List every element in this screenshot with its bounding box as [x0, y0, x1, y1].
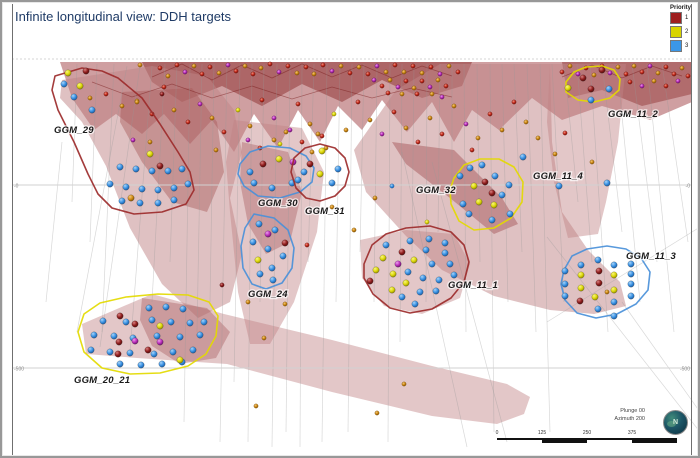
target-dot-GGM_32[interactable] [507, 211, 513, 217]
drillhole-point[interactable] [500, 128, 504, 132]
drillhole-point[interactable] [440, 132, 444, 136]
target-dot-GGM_24[interactable] [272, 227, 278, 233]
target-dot-GGM_20_21[interactable] [123, 319, 129, 325]
target-dot-GGM_11_1[interactable] [405, 269, 411, 275]
target-dot-GGM_32[interactable] [506, 182, 512, 188]
drillhole-point[interactable] [339, 64, 343, 68]
target-dot-GGM_11_1[interactable] [447, 261, 453, 267]
drillhole-point[interactable] [138, 63, 142, 67]
target-dot-GGM_32[interactable] [499, 192, 505, 198]
drillhole-point[interactable] [321, 63, 325, 67]
cluster-label-GGM_11_4: GGM_11_4 [533, 171, 584, 182]
drillhole-point[interactable] [553, 152, 557, 156]
elevation-label-right: -500 [680, 367, 690, 373]
target-dot-GGM_30[interactable] [251, 180, 257, 186]
drillhole-point[interactable] [628, 80, 632, 84]
target-dot-GGM_24[interactable] [269, 265, 275, 271]
target-dot-GGM_11_1[interactable] [367, 278, 373, 284]
drillhole-point[interactable] [160, 92, 164, 96]
target-dot-GGM_32[interactable] [466, 211, 472, 217]
drillhole-point[interactable] [411, 64, 415, 68]
drillhole-point[interactable] [131, 138, 135, 142]
drillhole-point[interactable] [373, 196, 377, 200]
target-dot-GGM_11_1[interactable] [399, 249, 405, 255]
target-dot-GGM_29[interactable] [171, 197, 177, 203]
target-dot-GGM_11_1[interactable] [433, 288, 439, 294]
target-dot-GGM_29[interactable] [155, 200, 161, 206]
drillhole-point[interactable] [200, 72, 204, 76]
drillhole-point[interactable] [563, 131, 567, 135]
target-dot-GGM_20_21[interactable] [117, 313, 123, 319]
drillhole-point[interactable] [236, 108, 240, 112]
target-dot-GGM_20_21[interactable] [115, 351, 121, 357]
target-dot-GGM_11_3[interactable] [628, 293, 634, 299]
target-dot-GGM_11_1[interactable] [451, 272, 457, 278]
drillhole-point[interactable] [576, 72, 580, 76]
drillhole-point[interactable] [316, 132, 320, 136]
drillhole-point[interactable] [368, 118, 372, 122]
target-dot-GGM_11_3[interactable] [596, 268, 602, 274]
drillhole-point[interactable] [605, 290, 609, 294]
target-dot-GGM_11_4[interactable] [556, 183, 562, 189]
target-dot-GGM_20_21[interactable] [168, 319, 174, 325]
target-dot-GGM_31[interactable] [295, 177, 301, 183]
target-dot-GGM_31[interactable] [319, 148, 325, 154]
target-dot-GGM_20_21[interactable] [187, 320, 193, 326]
drillhole-point[interactable] [444, 84, 448, 88]
target-dot-GGM_32[interactable] [489, 217, 495, 223]
target-dot-GGM_29[interactable] [123, 184, 129, 190]
drillhole-point[interactable] [656, 71, 660, 75]
drillhole-point[interactable] [425, 220, 429, 224]
drillhole-point[interactable] [388, 78, 392, 82]
target-dot-GGM_11_1[interactable] [407, 238, 413, 244]
drillhole-point[interactable] [568, 64, 572, 68]
drillhole-point[interactable] [464, 122, 468, 126]
drillhole-point[interactable] [234, 69, 238, 73]
target-dot-GGM_30[interactable] [301, 169, 307, 175]
drillhole-point[interactable] [560, 70, 564, 74]
target-dot-GGM_20_21[interactable] [111, 333, 117, 339]
target-dot-GGM_20_21[interactable] [157, 323, 163, 329]
drillhole-point[interactable] [222, 130, 226, 134]
drillhole-point[interactable] [248, 124, 252, 128]
target-dot-GGM_20_21[interactable] [107, 349, 113, 355]
target-dot-GGM_29[interactable] [185, 181, 191, 187]
target-dot-GGM_29[interactable] [179, 166, 185, 172]
drillhole-point[interactable] [183, 70, 187, 74]
drillhole-point[interactable] [624, 72, 628, 76]
drillhole-point[interactable] [332, 112, 336, 116]
drillhole-point[interactable] [396, 85, 400, 89]
drillhole-point[interactable] [686, 74, 690, 78]
drillhole-point[interactable] [672, 72, 676, 76]
drillhole-point[interactable] [186, 120, 190, 124]
drillhole-point[interactable] [415, 92, 419, 96]
drillhole-point[interactable] [295, 71, 299, 75]
target-dot-GGM_29[interactable] [139, 186, 145, 192]
drillhole-point[interactable] [272, 138, 276, 142]
target-dot-GGM_24[interactable] [280, 253, 286, 259]
drillhole-point[interactable] [412, 86, 416, 90]
target-dot-GGM_29[interactable] [89, 107, 95, 113]
target-dot-GGM_32[interactable] [467, 165, 473, 171]
drillhole-point[interactable] [251, 72, 255, 76]
drillhole-point[interactable] [380, 132, 384, 136]
drillhole-point[interactable] [470, 148, 474, 152]
target-dot-GGM_29[interactable] [71, 94, 77, 100]
target-dot-GGM_31[interactable] [335, 166, 341, 172]
target-dot-GGM_24[interactable] [265, 231, 271, 237]
target-dot-GGM_11_2[interactable] [565, 85, 571, 91]
drillhole-point[interactable] [429, 65, 433, 69]
target-dot-GGM_11_3[interactable] [628, 271, 634, 277]
target-dot-GGM_20_21[interactable] [127, 350, 133, 356]
drillhole-point[interactable] [608, 71, 612, 75]
target-dot-GGM_30[interactable] [276, 156, 282, 162]
drillhole-point[interactable] [300, 140, 304, 144]
target-dot-GGM_11_1[interactable] [380, 255, 386, 261]
drillhole-point[interactable] [375, 411, 379, 415]
target-dot-GGM_11_3[interactable] [611, 313, 617, 319]
drillhole-point[interactable] [312, 72, 316, 76]
target-dot-GGM_29[interactable] [107, 181, 113, 187]
drillhole-point[interactable] [198, 102, 202, 106]
drillhole-point[interactable] [404, 126, 408, 130]
drillhole-point[interactable] [372, 78, 376, 82]
target-dot-GGM_20_21[interactable] [157, 339, 163, 345]
target-dot-GGM_11_1[interactable] [429, 261, 435, 267]
drillhole-point[interactable] [308, 122, 312, 126]
target-dot-GGM_11_1[interactable] [403, 280, 409, 286]
target-dot-GGM_11_1[interactable] [411, 257, 417, 263]
target-dot-GGM_11_3[interactable] [611, 287, 617, 293]
drillhole-point[interactable] [272, 116, 276, 120]
drillhole-point[interactable] [375, 64, 379, 68]
target-dot-GGM_11_3[interactable] [628, 281, 634, 287]
target-dot-GGM_11_3[interactable] [592, 294, 598, 300]
target-dot-GGM_29[interactable] [171, 185, 177, 191]
target-dot-GGM_31[interactable] [329, 180, 335, 186]
target-dot-GGM_11_1[interactable] [412, 301, 418, 307]
target-dot-GGM_11_3[interactable] [562, 281, 568, 287]
target-dot-GGM_29[interactable] [137, 200, 143, 206]
target-dot-GGM_29[interactable] [117, 164, 123, 170]
target-dot-GGM_11_1[interactable] [399, 294, 405, 300]
drillhole-point[interactable] [652, 79, 656, 83]
drillhole-point[interactable] [390, 184, 394, 188]
target-dot-GGM_20_21[interactable] [197, 332, 203, 338]
target-dot-GGM_29[interactable] [83, 68, 89, 74]
drillhole-point[interactable] [348, 71, 352, 75]
target-dot-GGM_24[interactable] [282, 240, 288, 246]
target-dot-GGM_30[interactable] [269, 185, 275, 191]
target-dot-GGM_11_1[interactable] [373, 267, 379, 273]
target-dot-GGM_29[interactable] [65, 70, 71, 76]
target-dot-GGM_20_21[interactable] [100, 318, 106, 324]
target-dot-GGM_11_1[interactable] [390, 271, 396, 277]
drillhole-point[interactable] [420, 79, 424, 83]
legend-item-priority-2[interactable]: 2 [670, 26, 691, 38]
drillhole-point[interactable] [420, 71, 424, 75]
drillhole-point[interactable] [404, 79, 408, 83]
drillhole-point[interactable] [616, 65, 620, 69]
drillhole-point[interactable] [366, 72, 370, 76]
drillhole-point[interactable] [283, 302, 287, 306]
target-dot-GGM_20_21[interactable] [154, 333, 160, 339]
target-dot-GGM_24[interactable] [265, 246, 271, 252]
drillhole-point[interactable] [305, 243, 309, 247]
drillhole-point[interactable] [217, 71, 221, 75]
drillhole-point[interactable] [524, 120, 528, 124]
target-dot-GGM_11_1[interactable] [442, 250, 448, 256]
drillhole-point[interactable] [320, 134, 324, 138]
target-dot-GGM_11_3[interactable] [562, 293, 568, 299]
elevation-label-left: -0 [14, 184, 19, 190]
drillhole-point[interactable] [632, 64, 636, 68]
target-dot-GGM_11_3[interactable] [595, 306, 601, 312]
target-dot-GGM_11_2[interactable] [588, 86, 594, 92]
drillhole-point[interactable] [158, 66, 162, 70]
target-dot-GGM_29[interactable] [128, 195, 134, 201]
drillhole-point[interactable] [330, 69, 334, 73]
target-dot-GGM_11_1[interactable] [442, 240, 448, 246]
drillhole-point[interactable] [246, 300, 250, 304]
drillhole-point[interactable] [162, 85, 166, 89]
drillhole-point[interactable] [452, 104, 456, 108]
target-dot-GGM_32[interactable] [482, 179, 488, 185]
target-dot-GGM_32[interactable] [460, 201, 466, 207]
target-dot-GGM_11_3[interactable] [596, 280, 602, 286]
target-dot-GGM_29[interactable] [133, 166, 139, 172]
target-dot-GGM_20_21[interactable] [138, 362, 144, 368]
drillhole-point[interactable] [664, 65, 668, 69]
legend-item-priority-3[interactable]: 3 [670, 40, 691, 52]
drillhole-point[interactable] [436, 78, 440, 82]
target-dot-GGM_11_4[interactable] [520, 154, 526, 160]
drillhole-point[interactable] [284, 130, 288, 134]
cluster-label-GGM_11_1: GGM_11_1 [448, 280, 498, 291]
compass-globe[interactable]: N [663, 410, 688, 435]
target-dot-GGM_29[interactable] [61, 81, 67, 87]
target-dot-GGM_11_3[interactable] [611, 299, 617, 305]
cluster-label-GGM_20_21: GGM_20_21 [74, 375, 130, 386]
target-dot-GGM_20_21[interactable] [132, 338, 138, 344]
drillhole-point[interactable] [402, 382, 406, 386]
scale-tick-375: 375 [628, 430, 636, 436]
drillhole-point[interactable] [664, 84, 668, 88]
drillhole-point[interactable] [440, 95, 444, 99]
drillhole-point[interactable] [536, 136, 540, 140]
drillhole-point[interactable] [430, 92, 434, 96]
target-dot-GGM_31[interactable] [307, 161, 313, 167]
target-dot-GGM_11_3[interactable] [562, 268, 568, 274]
drillhole-point[interactable] [648, 64, 652, 68]
drillhole-point[interactable] [254, 404, 258, 408]
drillhole-point[interactable] [488, 112, 492, 116]
drillhole-point[interactable] [402, 70, 406, 74]
section-view-canvas[interactable]: -0-0-500-500GGM_29GGM_30GGM_31GGM_24GGM_… [2, 2, 700, 458]
drillhole-point[interactable] [447, 64, 451, 68]
drill-trace [46, 142, 62, 302]
target-dot-GGM_29[interactable] [165, 168, 171, 174]
target-dot-GGM_11_2[interactable] [580, 75, 586, 81]
target-dot-GGM_11_1[interactable] [417, 289, 423, 295]
drillhole-point[interactable] [310, 150, 314, 154]
drillhole-point[interactable] [640, 70, 644, 74]
drillhole-point[interactable] [456, 70, 460, 74]
drillhole-point[interactable] [428, 116, 432, 120]
drillhole-point[interactable] [210, 116, 214, 120]
drillhole-point[interactable] [120, 104, 124, 108]
target-dot-GGM_24[interactable] [270, 277, 276, 283]
target-dot-GGM_29[interactable] [77, 83, 83, 89]
target-dot-GGM_11_1[interactable] [423, 247, 429, 253]
drillhole-point[interactable] [416, 140, 420, 144]
target-dot-GGM_32[interactable] [479, 162, 485, 168]
target-dot-GGM_11_1[interactable] [383, 242, 389, 248]
drillhole-point[interactable] [384, 70, 388, 74]
drillhole-point[interactable] [268, 62, 272, 66]
drillhole-point[interactable] [262, 336, 266, 340]
target-dot-GGM_20_21[interactable] [88, 347, 94, 353]
target-dot-GGM_11_3[interactable] [595, 257, 601, 263]
drillhole-point[interactable] [172, 108, 176, 112]
drillhole-point[interactable] [286, 64, 290, 68]
drillhole-point[interactable] [640, 84, 644, 88]
drillhole-point[interactable] [476, 136, 480, 140]
target-dot-GGM_29[interactable] [119, 198, 125, 204]
priority-2-label: 2 [685, 29, 688, 35]
target-dot-GGM_11_3[interactable] [577, 298, 583, 304]
target-dot-GGM_29[interactable] [149, 168, 155, 174]
target-dot-GGM_32[interactable] [476, 199, 482, 205]
drillhole-point[interactable] [88, 96, 92, 100]
target-dot-GGM_20_21[interactable] [201, 319, 207, 325]
drillhole-point[interactable] [226, 63, 230, 67]
drillhole-point[interactable] [357, 65, 361, 69]
target-dot-GGM_30[interactable] [247, 169, 253, 175]
drillhole-point[interactable] [175, 63, 179, 67]
target-dot-GGM_11_3[interactable] [578, 285, 584, 291]
drillhole-point[interactable] [277, 70, 281, 74]
drillhole-point[interactable] [260, 98, 264, 102]
drillhole-point[interactable] [592, 73, 596, 77]
drillhole-point[interactable] [192, 64, 196, 68]
target-dot-GGM_11_2[interactable] [599, 67, 605, 73]
drillhole-point[interactable] [104, 92, 108, 96]
target-dot-GGM_20_21[interactable] [117, 361, 123, 367]
drillhole-point[interactable] [352, 228, 356, 232]
target-dot-GGM_24[interactable] [250, 239, 256, 245]
drillhole-point[interactable] [243, 64, 247, 68]
drillhole-point[interactable] [344, 128, 348, 132]
drillhole-point[interactable] [356, 100, 360, 104]
target-dot-GGM_20_21[interactable] [170, 349, 176, 355]
target-dot-GGM_11_1[interactable] [436, 277, 442, 283]
drillhole-point[interactable] [512, 100, 516, 104]
target-dot-GGM_20_21[interactable] [190, 347, 196, 353]
target-dot-GGM_30[interactable] [260, 161, 266, 167]
drillhole-point[interactable] [246, 138, 250, 142]
drillhole-point[interactable] [208, 65, 212, 69]
drillhole-point[interactable] [400, 92, 404, 96]
target-dot-GGM_11_3[interactable] [578, 262, 584, 268]
target-dot-GGM_32[interactable] [489, 190, 495, 196]
target-dot-GGM_24[interactable] [257, 271, 263, 277]
drillhole-point[interactable] [259, 66, 263, 70]
target-dot-GGM_11_2[interactable] [588, 97, 594, 103]
target-dot-GGM_31[interactable] [317, 171, 323, 177]
target-dot-GGM_24[interactable] [256, 221, 262, 227]
target-dot-GGM_32[interactable] [457, 173, 463, 179]
cluster-label-GGM_32: GGM_32 [416, 185, 456, 196]
target-dot-GGM_20_21[interactable] [177, 334, 183, 340]
target-dot-GGM_20_21[interactable] [159, 361, 165, 367]
target-dot-GGM_20_21[interactable] [132, 321, 138, 327]
drillhole-point[interactable] [590, 160, 594, 164]
target-dot-GGM_11_4[interactable] [604, 180, 610, 186]
scale-bar-segments [497, 438, 677, 443]
drillhole-point[interactable] [438, 72, 442, 76]
target-dot-GGM_20_21[interactable] [163, 304, 169, 310]
target-dot-GGM_20_21[interactable] [146, 305, 152, 311]
drillhole-point[interactable] [296, 102, 300, 106]
target-dot-GGM_11_1[interactable] [426, 236, 432, 242]
drillhole-point[interactable] [393, 63, 397, 67]
target-dot-GGM_11_1[interactable] [420, 275, 426, 281]
target-dot-GGM_32[interactable] [492, 173, 498, 179]
target-dot-GGM_29[interactable] [155, 187, 161, 193]
target-dot-GGM_32[interactable] [491, 202, 497, 208]
legend-panel: Priority 1 2 3 [670, 5, 691, 54]
drillhole-point[interactable] [278, 142, 282, 146]
target-dot-GGM_20_21[interactable] [149, 317, 155, 323]
target-dot-GGM_11_3[interactable] [578, 272, 584, 278]
drillhole-point[interactable] [288, 128, 292, 132]
target-dot-GGM_29[interactable] [147, 151, 153, 157]
legend-item-priority-1[interactable]: 1 [670, 12, 691, 24]
drillhole-point[interactable] [304, 65, 308, 69]
drillhole-point[interactable] [135, 100, 139, 104]
target-dot-GGM_11_3[interactable] [611, 262, 617, 268]
target-dot-GGM_24[interactable] [255, 257, 261, 263]
target-dot-GGM_11_1[interactable] [389, 287, 395, 293]
target-dot-GGM_20_21[interactable] [91, 332, 97, 338]
target-dot-GGM_20_21[interactable] [177, 357, 183, 363]
drillhole-point[interactable] [392, 110, 396, 114]
target-dot-GGM_11_3[interactable] [611, 272, 617, 278]
target-dot-GGM_20_21[interactable] [145, 347, 151, 353]
drill-trace [547, 237, 700, 432]
drillhole-point[interactable] [166, 74, 170, 78]
drillhole-point[interactable] [148, 140, 152, 144]
drillhole-point[interactable] [380, 84, 384, 88]
drillhole-point[interactable] [428, 85, 432, 89]
target-dot-GGM_29[interactable] [157, 163, 163, 169]
drillhole-point[interactable] [386, 91, 390, 95]
drillhole-point[interactable] [680, 66, 684, 70]
target-dot-GGM_11_2[interactable] [606, 86, 612, 92]
drillhole-point[interactable] [214, 148, 218, 152]
drillhole-point[interactable] [676, 79, 680, 83]
target-dot-GGM_20_21[interactable] [180, 306, 186, 312]
drillhole-point[interactable] [220, 283, 224, 287]
target-dot-GGM_20_21[interactable] [151, 351, 157, 357]
target-dot-GGM_11_1[interactable] [395, 261, 401, 267]
target-dot-GGM_20_21[interactable] [116, 339, 122, 345]
target-dot-GGM_32[interactable] [471, 183, 477, 189]
